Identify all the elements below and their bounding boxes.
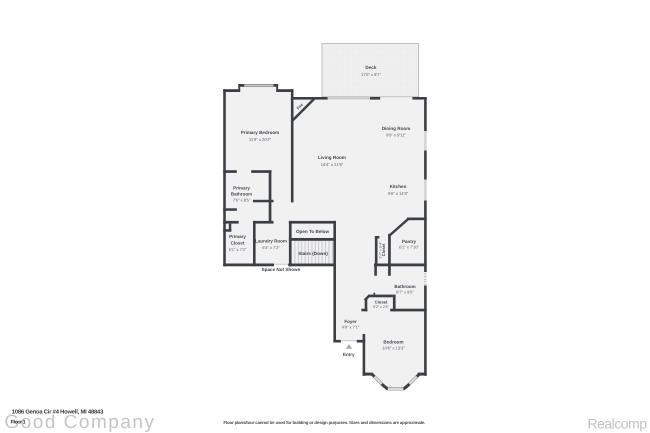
svg-text:2'-7" x 6'-4": 2'-7" x 6'-4" [379, 241, 383, 259]
svg-text:Dining Room: Dining Room [382, 126, 411, 131]
svg-text:9'9" x 9'11": 9'9" x 9'11" [386, 133, 406, 138]
svg-text:6'1" x 7'10": 6'1" x 7'10" [399, 245, 419, 250]
svg-text:9'6" x 14'3": 9'6" x 14'3" [388, 191, 409, 196]
svg-text:Bathroom: Bathroom [394, 284, 415, 289]
svg-text:Stairs (Down): Stairs (Down) [298, 251, 328, 256]
svg-text:11'9" x 20'2": 11'9" x 20'2" [249, 137, 272, 142]
svg-text:Pantry: Pantry [402, 239, 417, 244]
svg-text:Closet: Closet [231, 241, 245, 246]
svg-text:Closet: Closet [375, 299, 388, 304]
svg-text:Kitchen: Kitchen [390, 184, 407, 189]
svg-text:Primary Bedroom: Primary Bedroom [241, 130, 280, 135]
svg-text:7'6" x 8'5": 7'6" x 8'5" [233, 198, 251, 203]
svg-text:Deck: Deck [365, 65, 376, 70]
svg-text:Open To Below: Open To Below [296, 229, 330, 234]
svg-text:Primary: Primary [233, 185, 250, 190]
svg-text:Living Room: Living Room [318, 155, 346, 160]
svg-text:4'9" x 7'1": 4'9" x 7'1" [342, 324, 360, 329]
svg-text:Floor plans/tour cannot be use: Floor plans/tour cannot be used for buil… [223, 420, 425, 425]
svg-text:Bedroom: Bedroom [383, 339, 403, 344]
svg-text:Bathroom: Bathroom [231, 192, 252, 197]
svg-text:Floor 1: Floor 1 [11, 420, 26, 426]
svg-text:Laundry Room: Laundry Room [255, 238, 287, 243]
svg-text:Entry: Entry [343, 352, 355, 357]
svg-text:17'6" x 9'7": 17'6" x 9'7" [361, 72, 381, 77]
svg-text:Primary: Primary [229, 234, 246, 239]
svg-text:5'2" x 2'6": 5'2" x 2'6" [373, 305, 389, 309]
svg-text:Foyer: Foyer [344, 319, 357, 324]
svg-text:14'4" x 21'6": 14'4" x 21'6" [321, 162, 344, 167]
svg-text:8'7" x 9'5": 8'7" x 9'5" [396, 290, 414, 295]
svg-text:6'4" x 7'2": 6'4" x 7'2" [262, 245, 280, 250]
svg-text:Realcomp: Realcomp [588, 415, 648, 431]
svg-text:10'6" x 13'3": 10'6" x 13'3" [382, 346, 405, 351]
svg-text:1086 Genoa Cir #4 Howell, MI 4: 1086 Genoa Cir #4 Howell, MI 48843 [12, 409, 104, 416]
svg-text:5'1" x 7'2": 5'1" x 7'2" [229, 247, 247, 252]
svg-text:Space Not Shown: Space Not Shown [262, 267, 301, 272]
